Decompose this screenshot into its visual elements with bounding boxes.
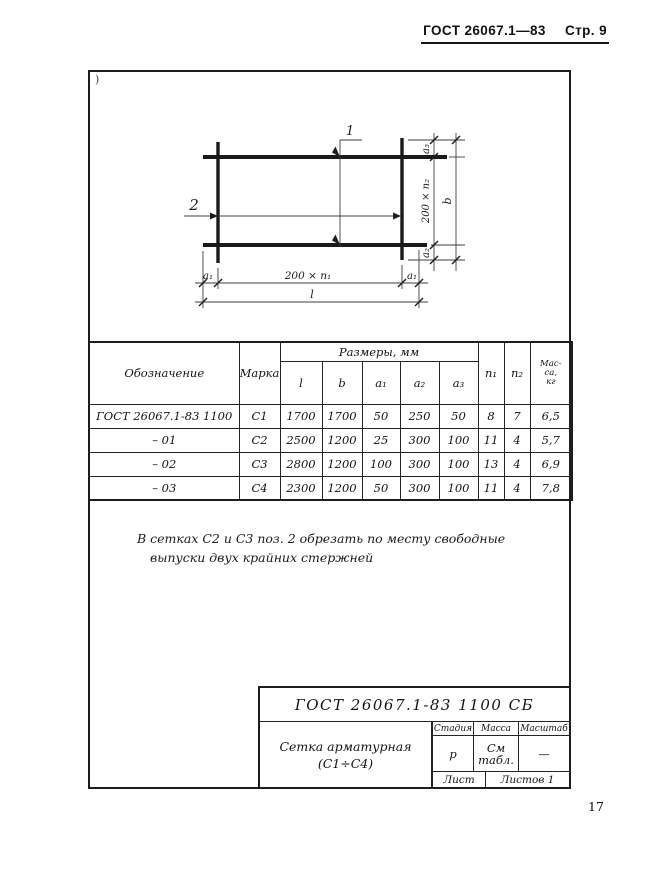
col-a3: a₃	[439, 361, 478, 404]
note-line1: В сетках С2 и С3 поз. 2 обрезать по мест…	[137, 529, 505, 548]
col-l: l	[280, 361, 322, 404]
part-name: Сетка арматурная (С1÷С4)	[260, 722, 432, 787]
cell-designation: – 03	[89, 476, 239, 500]
cell-b: 1700	[322, 404, 362, 428]
dim-200n2-label: 200 × n₂	[421, 179, 432, 224]
title-block: ГОСТ 26067.1-83 1100 СБ Сетка арматурная…	[258, 686, 571, 789]
cell-l: 2500	[280, 428, 322, 452]
sheets-label: Листов 1	[485, 772, 569, 787]
cell-n2: 4	[504, 476, 530, 500]
doc-designation: ГОСТ 26067.1-83 1100 СБ	[260, 688, 569, 722]
mesh-bars	[203, 138, 447, 263]
col-mark: Марка	[239, 342, 280, 404]
cell-a1: 25	[362, 428, 400, 452]
note-text: В сетках С2 и С3 поз. 2 обрезать по мест…	[137, 529, 505, 567]
scale-value: —	[518, 736, 569, 772]
cell-n1: 11	[478, 476, 504, 500]
dim-a1-right-label: a₁	[407, 271, 417, 282]
col-mass: Мас- са, кг	[530, 342, 572, 404]
part-name-line1: Сетка арматурная	[279, 738, 411, 755]
page-number: 17	[588, 799, 604, 814]
col-designation: Обозначение	[89, 342, 239, 404]
cell-mass: 6,5	[530, 404, 572, 428]
pos1-label: 1	[346, 124, 354, 139]
mass-label: Масса	[473, 722, 518, 736]
cell-n2: 4	[504, 428, 530, 452]
cell-mass: 7,8	[530, 476, 572, 500]
cell-b: 1200	[322, 452, 362, 476]
cell-l: 2300	[280, 476, 322, 500]
cell-a3: 100	[439, 452, 478, 476]
cell-mass: 5,7	[530, 428, 572, 452]
dim-b-label: b	[441, 197, 454, 204]
col-b: b	[322, 361, 362, 404]
scale-label: Масштаб	[518, 722, 569, 736]
cell-l: 2800	[280, 452, 322, 476]
cell-mass: 6,9	[530, 452, 572, 476]
gost-number: ГОСТ 26067.1—83	[423, 23, 546, 38]
pos2-label: 2	[188, 196, 199, 214]
dim-l-label: l	[310, 288, 314, 301]
col-a1: a₁	[362, 361, 400, 404]
cell-mark: С1	[239, 404, 280, 428]
cell-mark: С4	[239, 476, 280, 500]
col-a2: a₂	[400, 361, 439, 404]
mass-value-line2: табл.	[478, 754, 514, 766]
cell-n1: 11	[478, 428, 504, 452]
document-page: ГОСТ 26067.1—83 Стр. 9 ) 1 2	[0, 0, 661, 876]
header-underlined: ГОСТ 26067.1—83 Стр. 9	[421, 23, 609, 44]
col-sizes-group: Размеры, мм	[280, 342, 478, 361]
stage-label: Стадия	[432, 722, 473, 736]
cell-a1: 100	[362, 452, 400, 476]
table-row: – 03 С4 2300 1200 50 300 100 11 4 7,8	[89, 476, 572, 500]
col-mass-line3: кг	[531, 378, 572, 387]
table-row: – 01 С2 2500 1200 25 300 100 11 4 5,7	[89, 428, 572, 452]
cell-a2: 250	[400, 404, 439, 428]
cell-n1: 13	[478, 452, 504, 476]
dim-a3-label: a₃	[421, 144, 432, 154]
cell-a2: 300	[400, 476, 439, 500]
cell-a1: 50	[362, 476, 400, 500]
col-n2: n₂	[504, 342, 530, 404]
cell-l: 1700	[280, 404, 322, 428]
cell-b: 1200	[322, 476, 362, 500]
mesh-drawing: 1 2 a₁ 200 × n₁ a₁ l	[150, 105, 510, 320]
dim-a2-label: a₂	[421, 248, 432, 258]
cell-a3: 100	[439, 476, 478, 500]
cell-n2: 4	[504, 452, 530, 476]
spec-table: Обозначение Марка Размеры, мм n₁ n₂ Мас-…	[88, 341, 573, 501]
cell-a2: 300	[400, 452, 439, 476]
sheet-label: Лист	[432, 772, 485, 787]
mass-value-line1: См	[487, 742, 505, 754]
col-n1: n₁	[478, 342, 504, 404]
cell-designation: – 02	[89, 452, 239, 476]
page-header: ГОСТ 26067.1—83 Стр. 9	[421, 20, 609, 44]
right-dimension-lines	[408, 133, 465, 271]
cell-designation: ГОСТ 26067.1-83 1100	[89, 404, 239, 428]
mass-value: См табл.	[473, 736, 518, 772]
corner-mark: )	[95, 73, 99, 86]
stage-value: р	[432, 736, 473, 772]
table-row: ГОСТ 26067.1-83 1100 С1 1700 1700 50 250…	[89, 404, 572, 428]
page-label: Стр. 9	[565, 23, 607, 38]
cell-n1: 8	[478, 404, 504, 428]
cell-a3: 50	[439, 404, 478, 428]
dim-a1-left-label: a₁	[203, 271, 213, 282]
cell-a1: 50	[362, 404, 400, 428]
note-line2: выпуски двух крайних стержней	[150, 548, 505, 567]
cell-mark: С3	[239, 452, 280, 476]
cell-a3: 100	[439, 428, 478, 452]
table-row: – 02 С3 2800 1200 100 300 100 13 4 6,9	[89, 452, 572, 476]
part-name-line2: (С1÷С4)	[318, 755, 373, 772]
cell-b: 1200	[322, 428, 362, 452]
cell-a2: 300	[400, 428, 439, 452]
dim-200n1-label: 200 × n₁	[284, 270, 332, 282]
cell-n2: 7	[504, 404, 530, 428]
cell-designation: – 01	[89, 428, 239, 452]
cell-mark: С2	[239, 428, 280, 452]
